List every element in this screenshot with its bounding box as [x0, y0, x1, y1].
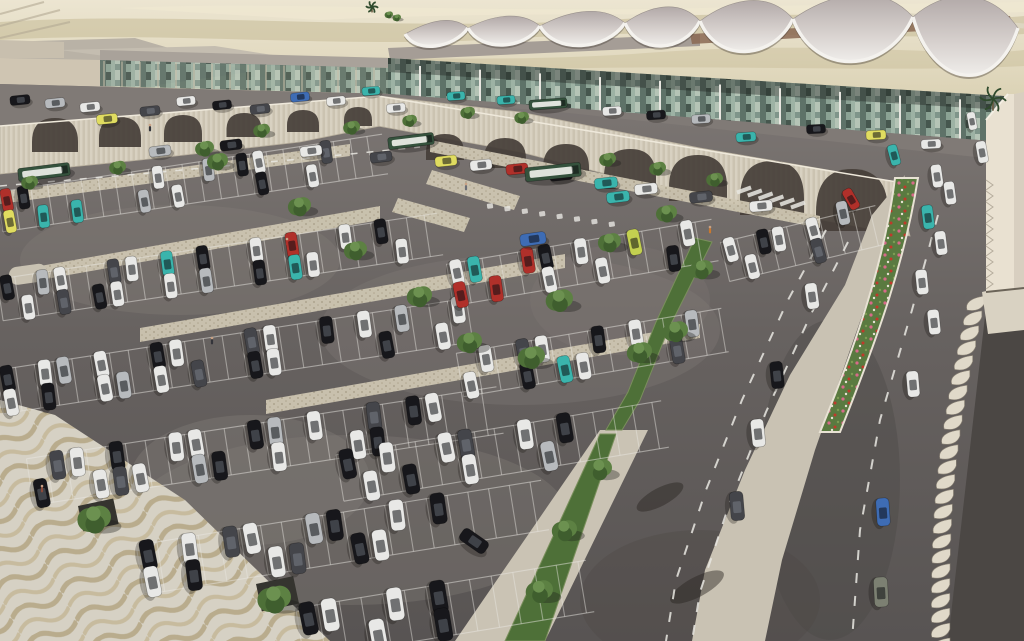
pedestrian	[211, 337, 214, 345]
car-glass	[528, 235, 539, 244]
car-glass	[642, 185, 652, 192]
car-glass	[520, 429, 530, 442]
car-glass	[41, 368, 50, 380]
car-glass	[368, 88, 376, 94]
car-glass	[274, 452, 283, 464]
white-building-side	[1014, 92, 1024, 290]
aerial-render-viewport	[0, 0, 1024, 641]
car-glass	[377, 227, 385, 238]
car-glass	[813, 126, 821, 132]
car-glass	[288, 240, 296, 251]
pedestrian-head	[41, 485, 44, 488]
car-glass	[442, 157, 451, 164]
tree-foliage	[604, 234, 614, 244]
car-glass	[594, 335, 603, 347]
car-glass	[398, 314, 407, 326]
car-glass	[698, 116, 706, 122]
car-glass	[492, 284, 501, 295]
pedestrian	[286, 238, 289, 246]
car-glass	[110, 267, 118, 278]
car-glass	[632, 328, 641, 340]
car-glass	[199, 254, 207, 265]
car-glass	[293, 553, 303, 566]
car-glass	[392, 510, 402, 523]
tree-foliage	[348, 121, 355, 128]
car-glass	[409, 405, 419, 418]
pedestrian-body	[211, 339, 213, 344]
car-glass	[877, 587, 886, 599]
car-glass	[323, 325, 332, 337]
tree-foliage	[669, 322, 680, 333]
car-glass	[393, 105, 401, 111]
painted-stall-glyph	[608, 221, 615, 227]
car-glass	[369, 411, 378, 423]
car-glass	[924, 213, 932, 223]
painted-stall-glyph	[504, 206, 511, 212]
pedestrian-head	[709, 226, 712, 229]
pedestrian	[149, 124, 152, 132]
car-glass	[256, 268, 264, 279]
car-glass	[271, 427, 280, 439]
car-glass	[24, 303, 32, 314]
car-glass	[398, 247, 406, 258]
car-glass	[310, 420, 320, 433]
car-glass	[219, 102, 227, 108]
airport-parking-aerial-render	[0, 0, 1024, 641]
tree-foliage	[464, 107, 470, 113]
pedestrian	[41, 485, 44, 493]
car-glass	[172, 348, 181, 360]
car-glass	[513, 165, 522, 172]
car-glass	[183, 98, 191, 104]
wall-arch	[164, 115, 202, 142]
car-glass	[577, 247, 586, 258]
car-glass	[270, 357, 279, 369]
car-glass	[453, 93, 461, 99]
car-glass	[697, 193, 707, 200]
tree-foliage	[662, 206, 671, 215]
car-glass	[390, 598, 401, 612]
tree-foliage	[604, 153, 611, 160]
car-glass	[291, 263, 299, 274]
tree-foliage	[696, 261, 706, 271]
car-glass	[20, 193, 28, 203]
car-glass	[609, 108, 617, 114]
pedestrian	[465, 183, 468, 191]
tree-foliage	[294, 198, 304, 208]
tree-foliage	[558, 521, 569, 532]
tree-foliage	[406, 115, 412, 121]
car-glass	[909, 380, 917, 391]
car-glass	[87, 104, 96, 110]
painted-stall-glyph	[487, 203, 494, 209]
car-glass	[185, 543, 195, 556]
car-glass	[930, 318, 938, 329]
car-glass	[147, 108, 156, 114]
tree-foliage	[525, 347, 537, 359]
car-glass	[688, 319, 697, 331]
car-glass	[257, 106, 266, 112]
car-glass	[128, 264, 136, 275]
car-glass	[189, 570, 199, 583]
car-glass	[602, 179, 612, 186]
car-glass	[733, 501, 742, 513]
pedestrian-head	[465, 183, 468, 186]
car-glass	[297, 94, 305, 100]
car-glass	[116, 476, 126, 489]
car-glass	[653, 112, 661, 118]
tree-foliage	[86, 506, 100, 520]
car-glass	[873, 132, 881, 138]
painted-stall-glyph	[521, 208, 528, 214]
car-glass	[879, 507, 888, 519]
car-glass	[330, 520, 340, 534]
car-glass	[154, 173, 162, 183]
car-glass	[670, 254, 679, 265]
tree-foliage	[593, 460, 604, 471]
car-glass	[773, 370, 782, 382]
car-glass	[252, 246, 260, 257]
car-glass	[226, 536, 236, 550]
tree-foliage	[553, 290, 565, 302]
car-glass	[353, 439, 363, 452]
car-glass	[757, 202, 767, 209]
tree-foliage	[200, 141, 208, 149]
car-glass	[614, 193, 624, 201]
car-glass	[202, 276, 210, 287]
tree-foliage	[114, 161, 121, 168]
car-glass	[167, 281, 175, 292]
tree-foliage	[533, 581, 545, 593]
car-glass	[39, 278, 47, 289]
wall-arch	[287, 110, 319, 132]
tree-foliage	[654, 162, 661, 169]
car-glass	[172, 442, 181, 454]
pedestrian-body	[709, 228, 711, 233]
car-glass	[309, 260, 317, 271]
tree-foliage	[395, 15, 399, 19]
car-glass	[503, 97, 511, 103]
bus-windshield	[561, 100, 566, 106]
tree-foliage	[26, 176, 33, 183]
car-glass	[163, 259, 171, 270]
car-glass	[119, 380, 128, 392]
car-glass	[40, 212, 47, 222]
car-glass	[112, 451, 122, 464]
pedestrian-head	[286, 238, 289, 241]
car-glass	[933, 172, 941, 182]
painted-stall-glyph	[556, 214, 563, 220]
car-glass	[44, 392, 53, 404]
tree-foliage	[266, 586, 280, 600]
car-glass	[333, 98, 341, 104]
car-glass	[238, 161, 246, 171]
car-glass	[266, 334, 275, 346]
car-glass	[156, 147, 165, 154]
car-glass	[52, 100, 61, 106]
car-glass	[918, 278, 926, 289]
bus-windshield	[571, 165, 579, 174]
tree-foliage	[213, 154, 222, 163]
car-glass	[17, 97, 26, 103]
car-glass	[53, 460, 63, 473]
pedestrian-body	[149, 126, 151, 131]
pedestrian-body	[286, 240, 288, 245]
tree-foliage	[387, 12, 391, 16]
white-building-face	[986, 94, 1014, 292]
car-glass	[743, 134, 751, 140]
stepped-structure	[0, 40, 64, 58]
car-glass	[215, 461, 225, 474]
car-glass	[433, 503, 443, 517]
painted-stall-glyph	[574, 216, 581, 222]
car-glass	[103, 116, 112, 123]
car-glass	[808, 291, 817, 302]
painted-stall-glyph	[539, 211, 546, 217]
car-glass	[477, 161, 486, 168]
bus-windshield	[61, 165, 68, 174]
pedestrian-body	[465, 185, 467, 190]
pedestrian-head	[211, 337, 214, 340]
car-glass	[251, 429, 261, 442]
tree-foliage	[350, 242, 360, 252]
car-glass	[341, 232, 349, 243]
tree-foliage	[413, 287, 424, 298]
car-glass	[524, 256, 533, 267]
pedestrian	[709, 226, 712, 234]
tree-foliage	[518, 112, 524, 118]
car-glass	[227, 141, 236, 148]
tree-foliage	[711, 173, 718, 180]
car-glass	[382, 452, 392, 465]
car-glass	[754, 428, 763, 440]
car-glass	[377, 153, 386, 160]
car-glass	[360, 319, 369, 331]
tree-foliage	[258, 124, 265, 131]
bus-windshield	[426, 135, 432, 143]
car-glass	[73, 457, 82, 469]
car-glass	[946, 189, 954, 199]
car-glass	[928, 141, 936, 147]
pedestrian-head	[149, 124, 152, 127]
car-glass	[113, 289, 121, 300]
pedestrian-body	[41, 487, 43, 492]
car-glass	[307, 147, 316, 154]
tree-foliage	[463, 333, 474, 344]
tree-foliage	[633, 343, 644, 354]
painted-stall-glyph	[591, 219, 598, 225]
car-glass	[937, 239, 945, 249]
car-glass	[74, 207, 82, 217]
